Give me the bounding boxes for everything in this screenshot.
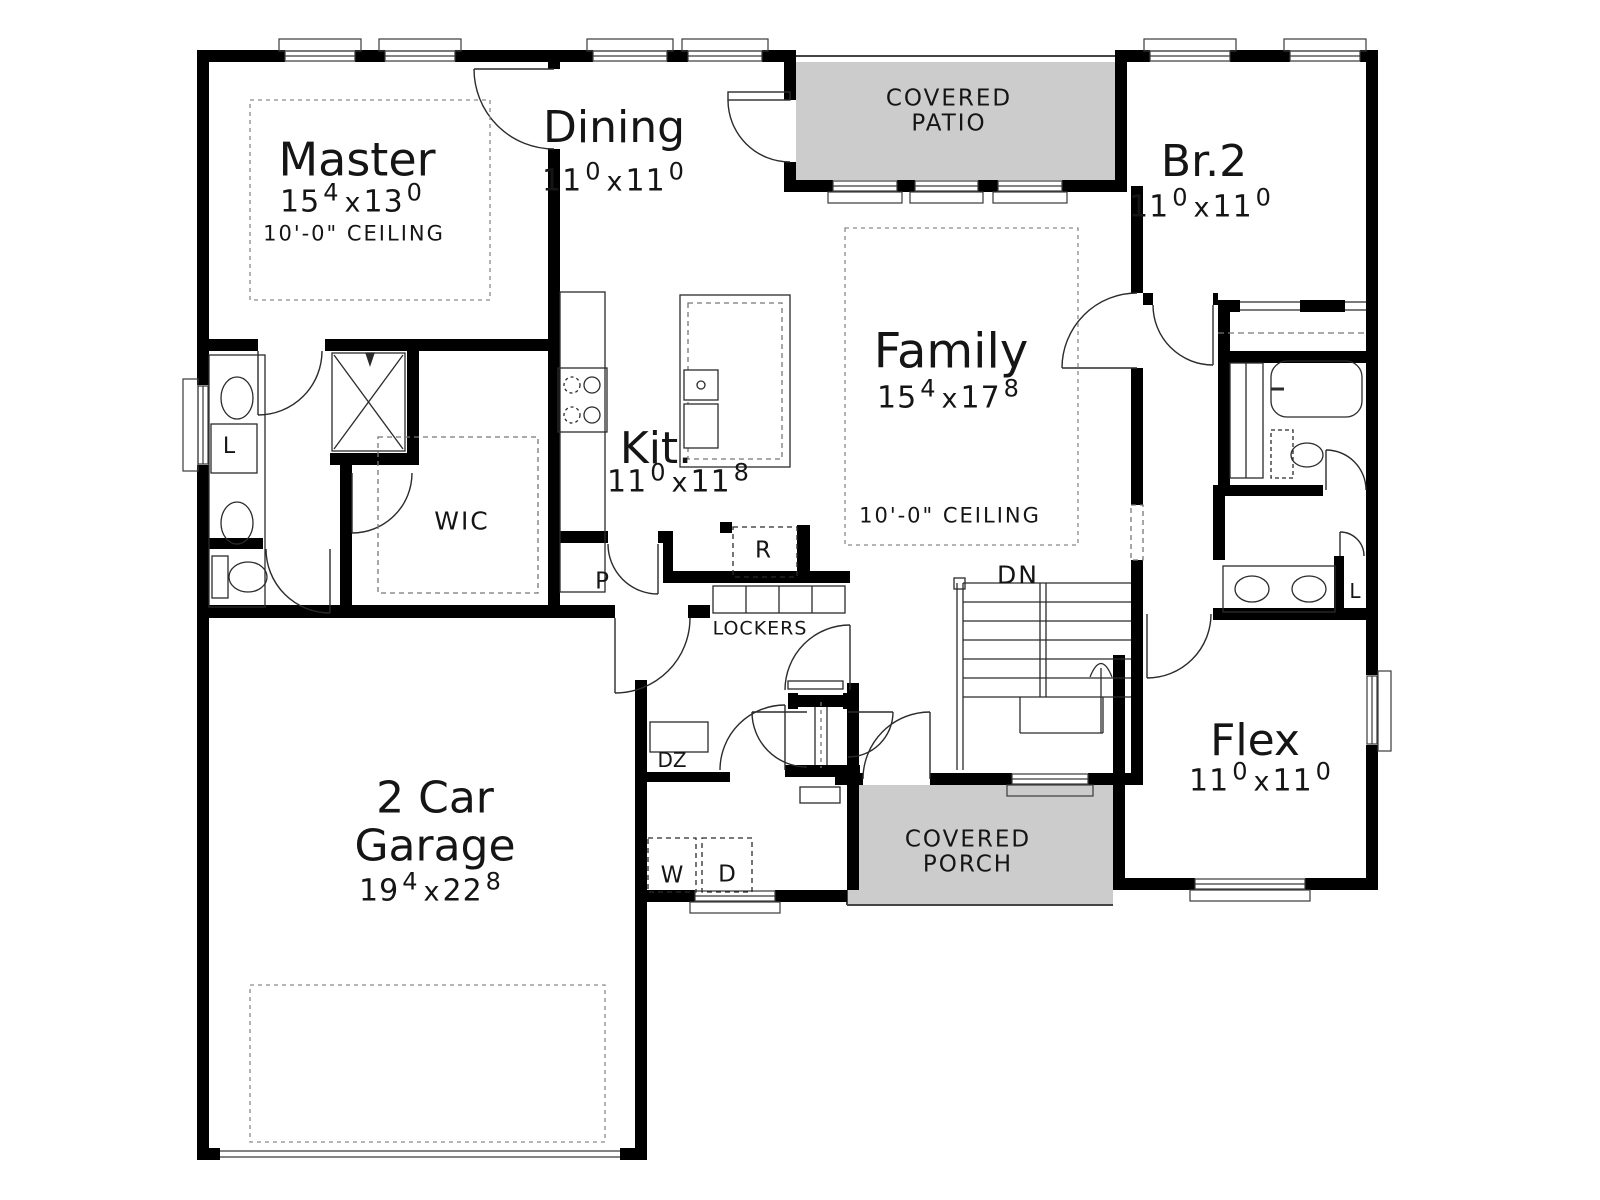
garage-door-track — [220, 1151, 620, 1157]
door-patio — [728, 92, 790, 162]
rugs — [250, 100, 1078, 1142]
label-washer: W — [661, 863, 684, 888]
label-stairs-down: DN — [997, 561, 1039, 589]
window — [379, 39, 461, 61]
door-bath2 — [1326, 450, 1366, 490]
door-br2 — [1153, 305, 1213, 365]
room-dim-kitchen: 110x118 — [607, 466, 753, 499]
room-dim-garage: 194x228 — [359, 875, 505, 908]
kitchen-counter — [558, 292, 607, 592]
window — [1367, 671, 1391, 751]
window — [828, 181, 902, 203]
room-label-flex: Flex — [1210, 717, 1300, 765]
door-pantry — [608, 544, 658, 594]
label-wic: WIC — [434, 507, 490, 535]
window — [1144, 39, 1236, 61]
master-bath-vanity — [209, 355, 265, 607]
window — [1284, 39, 1366, 61]
room-label-dining: Dining — [543, 104, 685, 152]
shower — [332, 353, 405, 451]
room-ceiling-master: 10'-0" CEILING — [263, 222, 445, 245]
window — [1190, 879, 1310, 901]
label-linen-bath: L — [1349, 580, 1360, 602]
label-lockers: LOCKERS — [713, 619, 808, 640]
door-linen — [1340, 532, 1364, 556]
room-dim-dining: 110x110 — [542, 165, 688, 198]
kitchen-island — [680, 295, 790, 467]
door-flex — [1147, 614, 1211, 678]
stairs — [954, 578, 1131, 770]
door-front-entry — [863, 712, 930, 779]
room-dim-master: 154x130 — [280, 186, 426, 219]
window — [993, 181, 1067, 203]
room-label-family: Family — [874, 326, 1028, 379]
door-family-hall — [1062, 293, 1137, 368]
room-dim-flex: 110x110 — [1189, 765, 1335, 798]
window — [910, 181, 983, 203]
label-pantry: P — [595, 569, 609, 594]
area-label-covered-patio: COVEREDPATIO — [886, 87, 1012, 138]
room-dim-br2: 110x110 — [1129, 191, 1275, 224]
window — [587, 39, 673, 61]
door-toilet-room — [266, 549, 330, 613]
label-linen-master: L — [223, 435, 235, 459]
label-dryer: D — [718, 862, 736, 887]
room-ceiling-family: 10'-0" CEILING — [859, 504, 1041, 527]
toilet-master — [212, 556, 267, 598]
window — [183, 379, 208, 471]
room-label-garage: 2 CarGarage — [354, 775, 515, 872]
lockers-bench — [713, 586, 845, 613]
window — [279, 39, 361, 61]
label-refrigerator: R — [755, 538, 771, 563]
window — [682, 39, 768, 61]
cased-opening — [1131, 505, 1143, 560]
room-label-br2: Br.2 — [1161, 138, 1247, 186]
floor-plan: Master 154x130 10'-0" CEILING Dining 110… — [0, 0, 1600, 1200]
area-label-covered-porch: COVEREDPORCH — [905, 828, 1031, 879]
label-drop-zone: DZ — [657, 749, 686, 771]
door-closet-bifold-left — [752, 712, 807, 767]
door-wic — [352, 473, 412, 533]
door-garage — [615, 618, 690, 693]
window — [690, 891, 780, 913]
door-master-bath — [258, 351, 322, 415]
room-dim-family: 154x178 — [877, 382, 1023, 415]
